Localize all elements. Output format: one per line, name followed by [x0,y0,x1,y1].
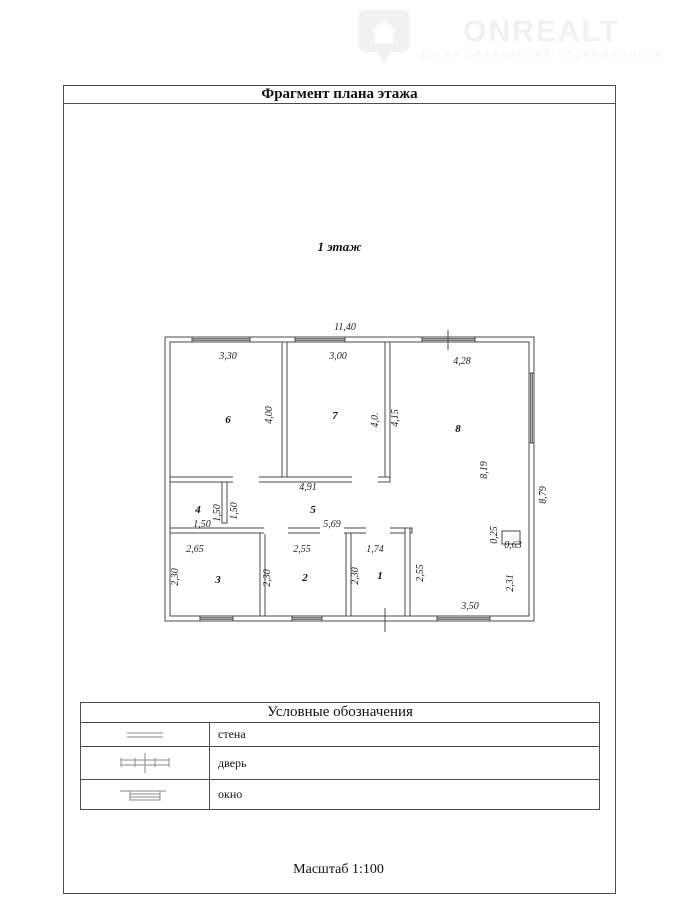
room-number: 2 [301,572,308,584]
dimension-label: 0,63 [504,540,522,551]
dimension-label: 4,15 [390,409,401,427]
door-room1 [366,527,390,534]
page-title: Фрагмент плана этажа [64,86,615,104]
window-bottom-room2 [292,616,322,621]
dimension-label: 1,50 [229,502,240,520]
onrealt-watermark: ONREALT ДОСКА ОБЪЯВЛЕНИЙ НЕДВИЖИМОСТИ [357,8,664,66]
room-number: 4 [194,504,201,516]
dimension-label: 11,40 [334,322,356,333]
window-top-room8 [422,330,475,350]
room-number: 3 [214,574,221,586]
window-top-room7 [295,337,345,342]
dimension-label: 3,00 [328,351,347,362]
legend-label: стена [210,723,599,746]
dimension-label: 1,50 [212,504,223,522]
legend-row-door: дверь [81,747,599,780]
watermark-text: ONREALT ДОСКА ОБЪЯВЛЕНИЙ НЕДВИЖИМОСТИ [419,16,664,59]
onrealt-pin-icon [357,8,411,66]
dimension-label: 4,91 [299,482,317,493]
dimension-label: 0,25 [489,526,500,544]
legend-row-window: окно [81,780,599,809]
dimension-label: 3,50 [460,601,479,612]
wall-symbol-icon [81,723,210,746]
room-number: 5 [310,504,316,516]
watermark-tagline: ДОСКА ОБЪЯВЛЕНИЙ НЕДВИЖИМОСТИ [419,50,664,59]
dimension-label: 2,31 [505,574,516,592]
room-number: 7 [332,410,338,422]
dimension-label: 8,19 [479,461,490,479]
legend-title: Условные обозначения [81,703,599,723]
door-symbol-icon [81,747,210,779]
dimension-label: 2,55 [293,544,311,555]
door-room7 [352,476,378,483]
dimension-label: 2,30 [350,567,361,585]
window-symbol-icon [81,780,210,809]
window-bottom-right [437,616,490,621]
window-bottom-room3 [200,616,233,621]
dimension-label: 2,65 [186,544,204,555]
window-right-room8 [529,373,534,443]
dimension-label: 2,55 [415,564,426,582]
wall-1-right [405,528,410,616]
legend-table: Условные обозначения стена дверь [80,702,600,810]
dimension-label: 5,69 [323,519,341,530]
door-room3 [264,527,288,534]
dimension-label: 2,30 [170,568,181,586]
window-top-room6 [192,337,250,342]
dimension-label: 1,74 [366,544,384,555]
floor-label: 1 этаж [64,239,615,255]
dimension-label: 4,00 [264,406,275,424]
room-number: 8 [455,423,461,435]
floor-plan: 11,40 3,30 3,00 4,28 4,91 1,50 5,69 2,65… [160,315,555,635]
dimension-label: 4,28 [453,356,471,367]
legend-row-wall: стена [81,723,599,747]
dimension-label: 2,30 [262,569,273,587]
room-number: 6 [225,414,231,426]
legend-label: окно [210,780,599,809]
legend-label: дверь [210,747,599,779]
dimension-label: 3,30 [218,351,237,362]
room-number: 1 [377,570,383,582]
door-room6 [233,476,259,483]
watermark-brand: ONREALT [463,16,620,48]
dimension-label: 8,79 [538,486,549,504]
wall-6-7 [282,342,287,477]
dimension-label: 1,50 [193,519,211,530]
dimension-label: 4,0. [370,413,381,428]
scale-note: Масштаб 1:100 [63,862,614,878]
